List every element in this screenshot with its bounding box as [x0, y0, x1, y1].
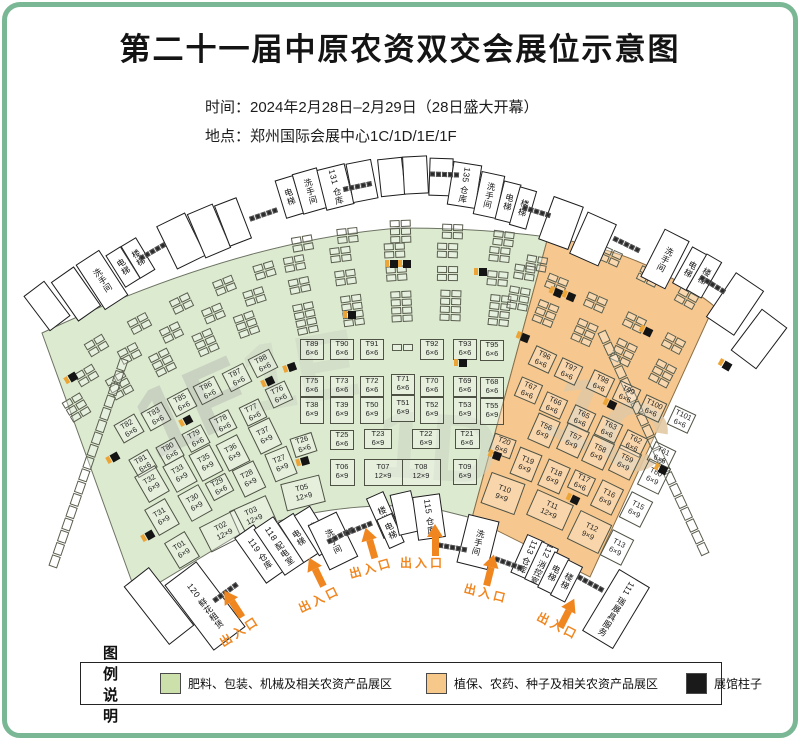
booth-T21: T216×6: [455, 429, 480, 449]
small-booth-cell: [347, 226, 358, 234]
booth-T06: T066×9: [330, 459, 355, 486]
booth-size: 6×9: [459, 472, 472, 481]
door-dot: [453, 172, 458, 177]
small-booth-cell: [401, 235, 411, 242]
door-dot: [443, 543, 449, 549]
booth-T90: T906×6: [330, 339, 354, 360]
door-dot: [455, 545, 461, 551]
small-booth-cell: [343, 318, 354, 326]
small-booth-cell: [498, 319, 509, 327]
small-booth-cell: [448, 266, 458, 273]
booth-cluster: [439, 289, 461, 321]
legend-green-swatch-icon: [160, 673, 181, 694]
small-booth-cell: [389, 220, 399, 227]
booth-cluster: [290, 234, 313, 252]
room-label: 131 仓库: [326, 168, 343, 206]
small-booth-cell: [307, 324, 318, 333]
pillar-tick: [566, 493, 573, 501]
booth-size: 12×9: [295, 491, 313, 503]
small-booth-cell: [507, 293, 518, 302]
booth-size: 6×9: [397, 408, 410, 417]
room-label: 洗手间: [302, 177, 318, 205]
booth-cluster: [383, 242, 405, 258]
booth-T89: T896×6: [300, 339, 324, 360]
entrance-label: 出入口: [400, 554, 448, 568]
booth-cluster: [390, 290, 413, 322]
small-booth-cell: [346, 276, 357, 284]
small-booth-cell: [535, 264, 546, 273]
booth-size: 6×9: [420, 439, 433, 448]
small-booth-cell: [537, 256, 548, 265]
small-booth-cell: [341, 303, 352, 311]
booth-size: 6×9: [275, 462, 290, 475]
small-booth-cell: [401, 298, 411, 306]
small-booth-cell: [523, 273, 534, 281]
small-booth-cell: [402, 306, 412, 314]
small-booth-cell: [525, 265, 536, 273]
booth-size: 6×9: [372, 439, 385, 448]
small-booth-cell: [448, 243, 458, 250]
hall-pillar-icon: [479, 268, 487, 276]
pillar-tick: [488, 449, 494, 457]
door-dot: [366, 181, 372, 187]
booth-cluster: [436, 265, 457, 280]
room-label: 电梯: [282, 187, 296, 207]
door-dot: [429, 171, 434, 176]
small-booth-cell: [437, 265, 447, 272]
small-booth-cell: [488, 253, 499, 261]
small-booth-cell: [337, 236, 348, 244]
small-booth-cell: [500, 247, 511, 255]
small-booth-cell: [302, 301, 313, 310]
pillar-tick: [654, 462, 661, 470]
door-dot: [544, 211, 550, 217]
small-booth-cell: [340, 245, 351, 253]
small-booth-cell: [439, 313, 449, 320]
small-booth-cell: [329, 247, 340, 255]
door-dot: [354, 183, 360, 189]
booth-T51: T516×9: [391, 395, 415, 422]
door-dot: [435, 171, 440, 176]
booth-cluster: [506, 285, 531, 311]
small-booth-cell: [499, 311, 510, 319]
booth-size: 6×9: [306, 410, 319, 419]
booth-size: 6×6: [306, 349, 319, 358]
booth-T72: T726×6: [360, 376, 384, 397]
small-booth-cell: [508, 285, 519, 294]
entrance-arrow-icon: [427, 524, 443, 556]
small-booth-cell: [292, 244, 303, 253]
door-dot: [260, 211, 266, 217]
booth-T55: T556×9: [480, 398, 504, 425]
small-booth-cell: [439, 305, 449, 312]
pillar-tick: [454, 359, 458, 366]
booth-size: 6×6: [426, 349, 439, 358]
small-booth-cell: [301, 234, 312, 243]
booth-T69: T696×6: [453, 376, 477, 397]
booth-T91: T916×6: [360, 339, 384, 360]
small-booth-cell: [518, 295, 529, 304]
small-booth-cell: [497, 279, 508, 287]
booth-size: 6×6: [459, 349, 472, 358]
small-booth-cell: [453, 224, 463, 231]
small-booth-cell: [436, 273, 446, 280]
small-booth-cell: [493, 229, 504, 237]
small-booth-cell: [487, 317, 498, 325]
booth-cluster: [436, 242, 458, 258]
small-booth-cell: [403, 344, 413, 351]
small-booth-cell: [295, 261, 306, 270]
pillar-tick: [516, 331, 522, 339]
legend-orange-label: 植保、农药、种子及相关农资产品展区: [454, 675, 658, 692]
door-dot: [254, 213, 260, 219]
small-booth-cell: [339, 295, 350, 303]
booth-cluster: [329, 245, 352, 262]
small-booth-cell: [330, 255, 341, 263]
small-booth-cell: [519, 287, 530, 296]
pillar-tick: [639, 324, 646, 332]
small-booth-cell: [450, 314, 460, 321]
booth-size: 6×9: [259, 433, 274, 446]
room-label: 洗手间: [655, 245, 675, 273]
booth-size: 6×6: [306, 386, 319, 395]
booth-T71: T716×6: [391, 374, 415, 395]
arrow-shaft: [228, 600, 244, 620]
small-booth-cell: [450, 306, 460, 313]
pillar-tick: [385, 260, 389, 267]
booth-size: 6×9: [426, 410, 439, 419]
booth-cluster: [486, 270, 508, 287]
booth-cluster: [512, 263, 535, 281]
door-dot: [521, 204, 527, 210]
booth-size: 6×6: [297, 443, 312, 455]
booth-cluster: [336, 226, 358, 243]
small-booth-cell: [300, 283, 311, 292]
door-dot: [461, 546, 467, 552]
small-booth-cell: [290, 236, 301, 245]
door-dot: [265, 209, 271, 215]
small-booth-cell: [487, 270, 498, 278]
legend-title: 图例说明: [103, 642, 120, 726]
room-label: 洗手间: [91, 266, 113, 294]
small-booth-cell: [451, 298, 461, 305]
legend-green-label: 肥料、包装、机械及相关农资产品展区: [188, 675, 392, 692]
room: [377, 157, 406, 197]
booth-cluster: [389, 219, 411, 243]
small-booth-cell: [292, 303, 303, 312]
small-booth-cell: [488, 309, 499, 317]
door-dot: [633, 246, 640, 253]
small-booth-cell: [341, 253, 352, 261]
booth-T22: T226×9: [412, 429, 440, 449]
small-booth-cell: [390, 299, 400, 307]
small-booth-cell: [447, 251, 457, 258]
room-label: 楼梯: [558, 571, 574, 591]
small-booth-cell: [503, 239, 514, 247]
legend-orange-swatch-icon: [426, 673, 447, 694]
booth-T53: T536×9: [453, 397, 477, 424]
room: [402, 155, 429, 194]
small-booth-cell: [452, 232, 462, 239]
small-booth-cell: [512, 271, 523, 279]
small-booth-cell: [391, 307, 401, 315]
door-dot: [533, 208, 539, 214]
event-info: 时间：2024年2月28日–2月29日（28日盛大开幕） 地点：郑州国际会展中心…: [205, 94, 538, 151]
booth-T75: T756×6: [300, 376, 324, 397]
booth-T52: T526×9: [420, 397, 444, 424]
small-booth-cell: [492, 237, 503, 245]
small-booth-cell: [351, 301, 362, 309]
hall-pillar-icon: [348, 311, 356, 319]
pillar-tick: [562, 290, 568, 298]
page-title: 第二十一届中原农资双交会展位示意图: [0, 24, 800, 69]
small-booth-cell: [304, 308, 315, 317]
small-booth-cell: [489, 301, 500, 309]
booth-size: 12×9: [413, 472, 430, 481]
hall-pillar-icon: [459, 359, 467, 367]
door-dot: [449, 544, 455, 550]
door-dot: [348, 184, 354, 190]
booth-T23: T236×9: [364, 429, 392, 449]
legend-pillar-swatch-icon: [686, 673, 707, 694]
small-booth-cell: [384, 251, 394, 259]
event-time: 时间：2024年2月28日–2月29日（28日盛大开幕）: [205, 94, 538, 123]
booth-T50: T506×9: [360, 397, 384, 424]
booth-size: 6×6: [366, 349, 379, 358]
small-booth-cell: [386, 274, 396, 282]
pillar-tick: [603, 398, 610, 406]
small-booth-cell: [306, 316, 317, 325]
door-dot: [342, 186, 348, 192]
small-booth-cell: [284, 264, 295, 273]
small-booth-cell: [400, 219, 410, 226]
booth-size: 6×9: [336, 472, 349, 481]
small-booth-cell: [504, 231, 515, 239]
booth-T09: T096×9: [453, 459, 477, 485]
small-booth-cell: [389, 228, 399, 235]
small-booth-cell: [437, 242, 447, 249]
small-booth-cell: [287, 278, 298, 287]
arrow-shaft: [312, 568, 327, 588]
small-booth-cell: [440, 297, 450, 304]
small-booth-cell: [282, 256, 293, 265]
door-strip: [429, 171, 458, 177]
booth-size: 6×6: [426, 386, 439, 395]
small-booth-cell: [289, 286, 300, 295]
small-booth-cell: [390, 291, 400, 299]
door-dot: [441, 171, 446, 176]
booth-T08: T0812×9: [402, 459, 441, 486]
door-dot: [248, 215, 254, 221]
booth-size: 6×9: [243, 476, 258, 489]
booth-cluster: [441, 223, 463, 239]
booth-T92: T926×6: [420, 339, 444, 360]
small-booth-cell: [400, 227, 410, 234]
pillar-tick: [474, 268, 478, 275]
booth-T39: T396×9: [330, 397, 354, 424]
booth-cluster: [392, 344, 413, 351]
hall-pillar-icon: [390, 260, 398, 268]
small-booth-cell: [436, 250, 446, 257]
pillar-tick: [398, 260, 402, 267]
small-booth-cell: [447, 274, 457, 281]
booth-size: 6×6: [486, 350, 499, 359]
hall-pillar-icon: [403, 260, 411, 268]
small-booth-cell: [296, 326, 307, 335]
door-dot: [447, 172, 452, 177]
small-booth-cell: [295, 319, 306, 328]
small-booth-cell: [526, 254, 537, 263]
small-booth-cell: [489, 293, 500, 301]
booth-size: 6×6: [459, 386, 472, 395]
booth-T70: T706×6: [420, 376, 444, 397]
small-booth-cell: [489, 245, 500, 253]
small-booth-cell: [401, 290, 411, 298]
door-dot: [360, 182, 366, 188]
booth-size: 6×6: [336, 386, 349, 395]
small-booth-cell: [303, 242, 314, 251]
booth-size: 6×6: [366, 386, 379, 395]
event-place: 地点：郑州国际会展中心1C/1D/1E/1F: [205, 123, 538, 152]
small-booth-cell: [441, 231, 451, 238]
booth-cluster: [334, 268, 357, 286]
booth-cluster: [488, 245, 510, 262]
room-label: 洗手间: [482, 181, 496, 209]
small-booth-cell: [293, 254, 304, 263]
small-booth-cell: [334, 270, 345, 278]
arrow-head: [427, 524, 443, 537]
booth-cluster: [339, 293, 364, 327]
booth-size: 6×9: [459, 410, 472, 419]
booth-size: 6×9: [366, 410, 379, 419]
booth-size: 12×9: [375, 472, 392, 481]
small-booth-cell: [440, 289, 450, 296]
door-dot: [271, 207, 277, 213]
door-dot: [516, 564, 522, 570]
room-label: 洗手间: [470, 528, 485, 556]
booth-T95: T956×6: [480, 340, 504, 361]
small-booth-cell: [397, 273, 407, 281]
booth-T93: T936×6: [453, 339, 477, 360]
small-booth-cell: [506, 301, 517, 310]
booth-cluster: [492, 229, 515, 246]
booth-size: 6×9: [336, 410, 349, 419]
small-booth-cell: [394, 242, 404, 250]
door-dot: [527, 206, 533, 212]
small-booth-cell: [336, 228, 347, 236]
booth-size: 6×6: [461, 439, 474, 448]
small-booth-cell: [498, 271, 509, 279]
booth-size: 6×9: [486, 411, 499, 420]
small-booth-cell: [383, 243, 393, 251]
small-booth-cell: [402, 314, 412, 322]
small-booth-cell: [335, 278, 346, 286]
small-booth-cell: [451, 290, 461, 297]
booth-cluster: [282, 254, 305, 273]
pillar-tick: [549, 286, 555, 294]
booth-size: 6×6: [336, 440, 349, 449]
booth-T68: T686×6: [480, 377, 504, 398]
booth-size: 6×6: [336, 349, 349, 358]
small-booth-cell: [514, 263, 525, 271]
small-booth-cell: [486, 278, 497, 286]
small-booth-cell: [350, 293, 361, 301]
booth-size: 6×6: [397, 384, 410, 393]
small-booth-cell: [344, 268, 355, 276]
booth-size: 6×9: [227, 450, 242, 463]
door-dot: [539, 210, 545, 216]
small-booth-cell: [298, 275, 309, 284]
pillar-tick: [295, 459, 301, 467]
pillar-tick: [343, 311, 347, 318]
small-booth-cell: [499, 255, 510, 263]
small-booth-cell: [293, 311, 304, 320]
booth-size: 6×6: [486, 387, 499, 396]
small-booth-cell: [442, 223, 452, 230]
booth-T25: T256×6: [330, 430, 354, 450]
small-booth-cell: [391, 315, 401, 323]
small-booth-cell: [395, 250, 405, 258]
booth-T38: T386×9: [300, 397, 324, 424]
small-booth-cell: [392, 344, 402, 351]
small-booth-cell: [516, 303, 527, 312]
legend-pillar-label: 展馆柱子: [714, 675, 762, 692]
booth-T07: T0712×9: [364, 459, 403, 486]
booth-T73: T736×6: [330, 376, 354, 397]
legend-box: 图例说明 肥料、包装、机械及相关农资产品展区 植保、农药、种子及相关农资产品展区…: [80, 662, 722, 705]
small-booth-cell: [348, 234, 359, 242]
